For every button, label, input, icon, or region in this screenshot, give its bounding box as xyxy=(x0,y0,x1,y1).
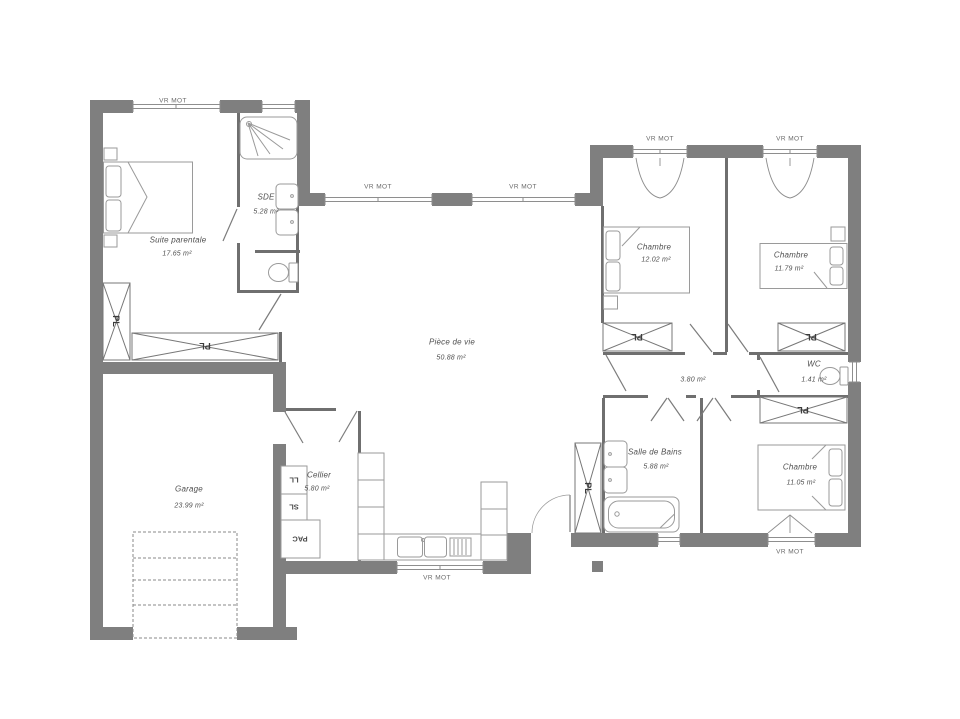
room-area-wc: 1.41 m² xyxy=(801,377,826,384)
wall-segment xyxy=(680,533,768,547)
interior-wall xyxy=(279,332,282,362)
room-label-salle-de-bains: Salle de Bains xyxy=(628,448,682,457)
room-area-salle-de-bains: 5.88 m² xyxy=(643,464,668,471)
room-label-garage: Garage xyxy=(175,485,203,494)
window-label: VR MOT xyxy=(364,184,392,191)
window-icon xyxy=(133,101,860,573)
room-area-garage: 23.99 m² xyxy=(174,503,203,510)
interior-wall xyxy=(237,290,299,293)
room-area-cellier: 5.80 m² xyxy=(304,486,329,493)
wall-segment xyxy=(483,561,510,574)
wall-segment xyxy=(297,100,310,206)
room-label-chambre-2: Chambre xyxy=(774,251,808,260)
dryer-label: SL xyxy=(289,503,299,512)
closet-label: PL xyxy=(111,315,121,327)
room-label-suite-parentale: Suite parentale xyxy=(150,236,207,245)
interior-wall xyxy=(603,395,648,398)
closet-label: PL xyxy=(797,405,809,415)
interior-wall xyxy=(603,352,685,355)
wall-segment xyxy=(590,145,633,158)
room-label-wc: WC xyxy=(807,360,821,369)
porch-post xyxy=(592,561,603,572)
interior-wall xyxy=(713,352,727,355)
garage-door-icon xyxy=(133,532,237,638)
sink-icon xyxy=(276,184,298,235)
interior-wall xyxy=(358,411,361,561)
closet-label: PL xyxy=(199,341,211,351)
wall-segment xyxy=(103,100,133,113)
interior-wall xyxy=(237,113,240,207)
wall-segment xyxy=(571,533,658,547)
shower-icon xyxy=(240,117,297,159)
wall-segment xyxy=(297,193,325,206)
room-area-chambre-2: 11.79 m² xyxy=(775,266,804,273)
room-label-chambre-3: Chambre xyxy=(783,463,817,472)
interior-wall xyxy=(725,158,728,352)
room-area-piece-de-vie: 50.88 m² xyxy=(436,355,465,362)
wall-segment xyxy=(815,533,861,547)
interior-wall xyxy=(255,250,300,253)
room-area-chambre-1: 12.02 m² xyxy=(641,257,670,264)
window-label: VR MOT xyxy=(509,184,537,191)
floor-plan: VR MOT VR MOT VR MOT VR MOT VR MOT VR MO… xyxy=(0,0,960,719)
interior-wall xyxy=(602,398,605,533)
room-label-chambre-1: Chambre xyxy=(637,243,671,252)
wall-segment xyxy=(273,444,286,640)
wall-segment xyxy=(90,627,133,640)
room-area-suite-parentale: 17.65 m² xyxy=(162,251,191,258)
closet-label: PL xyxy=(583,482,593,494)
wall-segment xyxy=(848,145,861,362)
closet-label: PL xyxy=(805,332,817,342)
room-label-cellier: Cellier xyxy=(307,471,331,480)
window-label: VR MOT xyxy=(423,575,451,582)
kitchen-counter-icon xyxy=(358,453,507,560)
wall-segment xyxy=(237,627,297,640)
interior-wall xyxy=(686,395,696,398)
closet-icon xyxy=(103,283,847,533)
room-area-chambre-3: 11.05 m² xyxy=(787,480,816,487)
wall-segment xyxy=(687,145,763,158)
bed-icon xyxy=(758,445,845,510)
wall-segment xyxy=(848,382,861,547)
entry-door-arc xyxy=(532,495,570,533)
window-label: VR MOT xyxy=(776,549,804,556)
wall-segment xyxy=(507,533,531,574)
washing-machine-label: LL xyxy=(289,476,298,485)
appliance-box-icon xyxy=(281,466,320,558)
bed-icon xyxy=(604,227,690,309)
interior-wall xyxy=(757,355,760,360)
wall-segment xyxy=(90,362,286,374)
wall-segment xyxy=(275,561,397,574)
window-label: VR MOT xyxy=(646,136,674,143)
toilet-icon xyxy=(269,263,299,282)
room-area-sde: 5.28 m² xyxy=(253,209,278,216)
heat-pump-label: PAC xyxy=(292,535,307,544)
interior-wall xyxy=(237,243,240,293)
wall-segment xyxy=(220,100,262,113)
closet-label: PL xyxy=(631,332,643,342)
room-label-sde: SDE xyxy=(257,193,274,202)
interior-wall xyxy=(749,352,848,355)
bed-icon xyxy=(104,148,193,247)
sink-icon xyxy=(604,441,627,493)
interior-wall xyxy=(286,408,336,411)
interior-wall xyxy=(601,206,604,323)
interior-wall xyxy=(757,390,760,395)
door-swing-icon xyxy=(223,209,779,532)
wall-segment xyxy=(432,193,472,206)
interior-wall xyxy=(700,398,703,533)
room-area-degagement: 3.80 m² xyxy=(680,377,705,384)
room-label-piece-de-vie: Pièce de vie xyxy=(429,338,475,347)
wall-segment xyxy=(273,374,286,412)
interior-wall xyxy=(731,395,848,398)
bathtub-icon xyxy=(604,497,679,532)
window-label: VR MOT xyxy=(159,98,187,105)
window-label: VR MOT xyxy=(776,136,804,143)
